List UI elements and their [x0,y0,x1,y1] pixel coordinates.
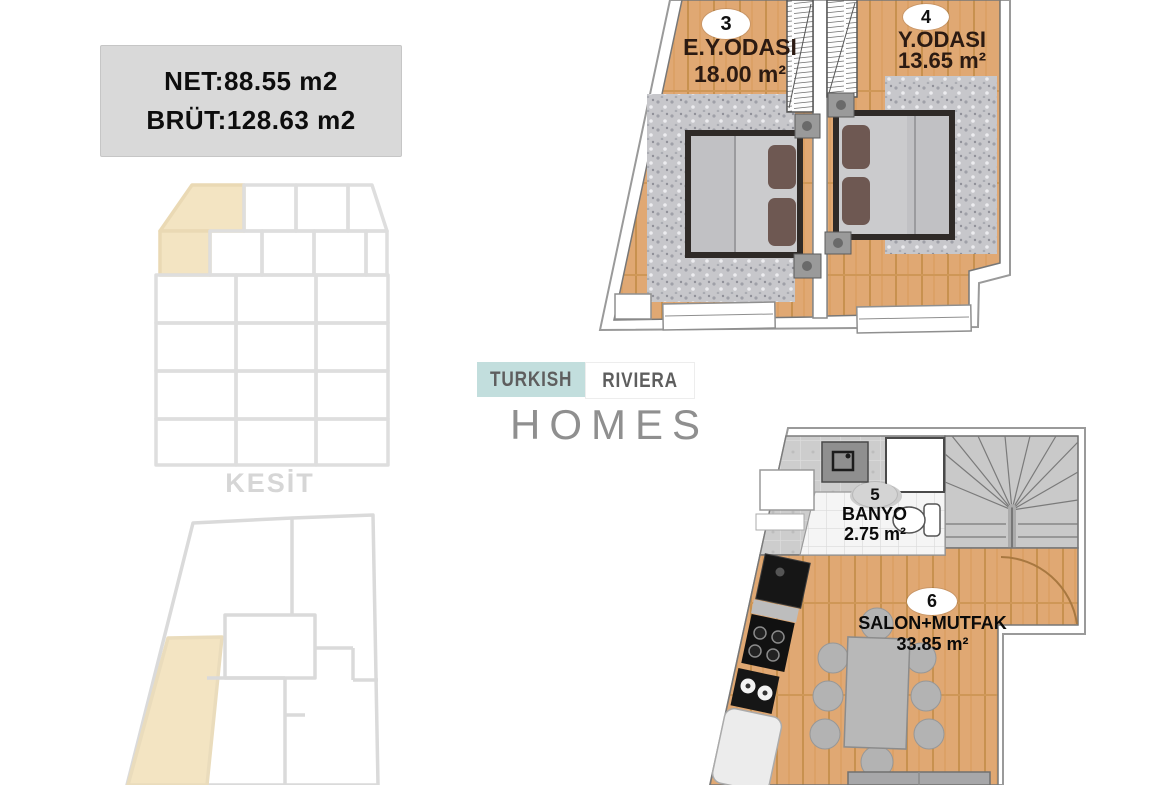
brut-area-text: BRÜT:128.63 m2 [101,105,401,136]
area-info-box: NET:88.55 m2 BRÜT:128.63 m2 [100,45,402,157]
room-6-number-badge: 6 [907,588,957,615]
brand-logo-row: TURKISH RIVIERA [477,362,709,399]
room-6-name: SALON+MUTFAK [840,613,1025,634]
kesit-label: KESİT [205,468,335,499]
key-plan-highlight-unit [128,637,222,785]
washing-machine [822,442,868,482]
kitchen-island [711,707,784,785]
key-plan-diagram [100,500,420,785]
brand-logo-word1: TURKISH [490,368,572,392]
room-5-area: 2.75 m² [810,524,940,545]
brand-logo-word2: RIVIERA [602,369,678,393]
room-3-area: 18.00 m² [650,61,830,88]
bedroom-3-bed [685,130,803,258]
brand-logo-word2-box: RIVIERA [585,362,695,399]
staircase [945,436,1078,548]
floor-plan-page: NET:88.55 m2 BRÜT:128.63 m2 KESİT [0,0,1170,785]
lower-floor-plan [700,420,1100,785]
room-4-area: 13.65 m² [862,48,1022,74]
brand-logo-word3: HOMES [510,401,709,449]
brand-logo-word1-box: TURKISH [477,362,585,397]
shower-cabin [886,438,944,492]
brand-logo: TURKISH RIVIERA HOMES [477,362,709,449]
room-6-area: 33.85 m² [840,634,1025,655]
bathroom-cabinet [760,470,814,510]
net-area-text: NET:88.55 m2 [101,66,401,97]
kesit-section-diagram [140,175,398,475]
kesit-highlight-cell-2 [160,231,210,275]
bathroom-shelf [756,514,804,530]
room-5-name: BANYO [812,504,937,525]
kesit-highlight-cell-1 [160,185,244,231]
room-3-name: E.Y.ODASI [650,34,830,61]
bedroom-4-bed [833,110,955,240]
sofa [848,772,990,785]
